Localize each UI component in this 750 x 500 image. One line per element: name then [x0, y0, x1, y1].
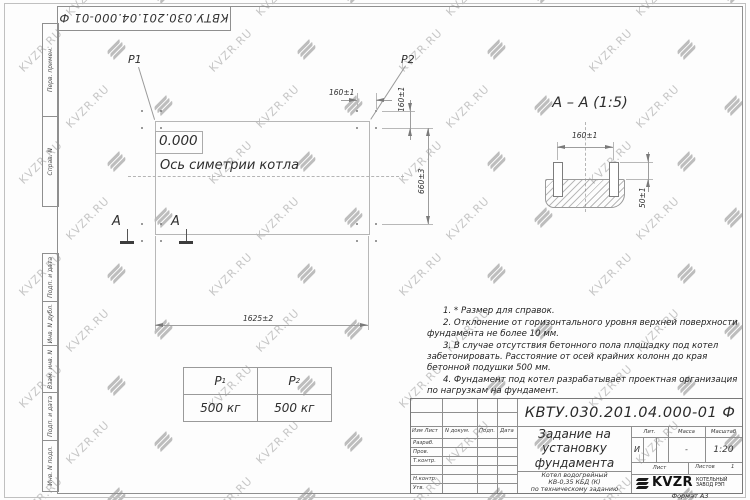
- extension-line: [357, 93, 358, 109]
- tb-col-header: Дата: [500, 428, 514, 434]
- dim-height: 660±3: [417, 169, 426, 194]
- side-label: Подп. и дата: [47, 257, 54, 298]
- doc-number: КВТУ.030.201.04.000-01 Ф: [525, 405, 736, 421]
- load-col1-header: P: [214, 374, 221, 388]
- extension-line: [155, 236, 156, 330]
- arrowhead: [426, 128, 430, 136]
- axis-label: Ось симетрии котла: [160, 158, 299, 173]
- side-label: Справ. N: [47, 148, 54, 175]
- note-item: 4. Фундамент под котел разрабатывает про…: [427, 375, 746, 397]
- extension-line: [613, 142, 614, 160]
- doc-subtitle-line: Котел водогрейный: [518, 472, 631, 479]
- scale-header: Масштаб: [705, 427, 742, 437]
- note-item: 1. * Размер для справок.: [427, 306, 746, 317]
- tb-col-header: N докум.: [445, 428, 470, 434]
- arrowhead: [646, 154, 650, 162]
- tb-line: [411, 412, 517, 413]
- company-name: KVZR: [652, 475, 693, 490]
- lit-value: И: [631, 438, 643, 461]
- anchor-bolt: [609, 162, 619, 197]
- arrowhead: [360, 323, 368, 327]
- tb-line: [656, 437, 657, 462]
- side-label: Взам. инв. N: [47, 350, 54, 389]
- side-cell: Перв. примен.: [43, 24, 58, 117]
- load-table-value: 500 кг: [184, 395, 258, 422]
- doc-title: Задание на установку фундамента: [518, 427, 631, 469]
- tb-line: [643, 437, 644, 462]
- arrowhead: [155, 323, 163, 327]
- arrowhead: [349, 98, 357, 102]
- tb-line: [442, 399, 443, 493]
- mass-value: -: [668, 438, 705, 461]
- tb-line: [411, 447, 517, 448]
- dim-bolt-spacing-x: 160±1: [329, 88, 354, 97]
- arrowhead: [408, 103, 412, 111]
- tb-col-header: Подп.: [479, 428, 495, 434]
- side-label: Перв. примен.: [47, 47, 54, 92]
- load-col2-sub: 2: [296, 376, 301, 385]
- lit-header: Лит.: [631, 427, 668, 437]
- dim-length: 1625±2: [243, 314, 273, 323]
- load-table-value: 500 кг: [258, 395, 332, 422]
- extension-line: [368, 236, 369, 330]
- load-table-header: P2: [258, 368, 332, 395]
- section-letter: А: [112, 214, 121, 229]
- dim-bolt-height: 50±1: [638, 187, 647, 208]
- tb-row-label: Пров.: [413, 449, 428, 455]
- dimension-line: [428, 128, 429, 224]
- tb-line: [411, 438, 517, 439]
- doc-subtitle-line: по техническому заданию: [518, 486, 631, 493]
- mass-header: Масса: [668, 427, 705, 437]
- arrowhead: [408, 128, 412, 136]
- anchor-bolt: [553, 162, 563, 197]
- doc-subtitle-line: КВ-0,35 КБД (К): [518, 479, 631, 486]
- side-label: Инв. N дубл.: [47, 304, 54, 343]
- tb-line: [688, 462, 689, 474]
- tb-row-label: Разраб.: [413, 440, 434, 446]
- notes: 1. * Размер для справок. 2. Отклонение о…: [427, 306, 746, 398]
- arrowhead: [557, 145, 565, 149]
- load-table: P1 P2 500 кг 500 кг: [183, 367, 332, 422]
- title-block: Изм Лист N докум. Подп. Дата Разраб. Про…: [410, 398, 743, 494]
- side-cell: Подп. и дата: [43, 254, 58, 302]
- section-title: А – А (1:5): [535, 95, 645, 111]
- side-cell: Справ. N: [43, 117, 58, 206]
- sheets-value: 1: [731, 464, 734, 470]
- extension-line: [382, 224, 433, 225]
- tb-line: [411, 426, 517, 427]
- side-cell: Инв. N подл.: [43, 441, 58, 491]
- section-cut-mark: [120, 241, 134, 244]
- symmetry-axis-line: [128, 176, 404, 177]
- side-label: Инв. N подл.: [47, 446, 54, 486]
- company-desc: КОТЕЛЬНЫЙ ЗАВОД РЭП: [696, 478, 727, 488]
- dim-section-spacing: 160±1: [572, 131, 597, 140]
- arrowhead: [605, 145, 613, 149]
- side-column-upper: Перв. примен. Справ. N: [42, 23, 59, 207]
- drawing-sheet: KVZR.RUKVZR.RUKVZR.RUKVZR.RUKVZR.RUKVZR.…: [0, 0, 750, 500]
- tb-line: [477, 399, 478, 493]
- side-label: Подп. и дата: [47, 396, 54, 437]
- note-item: 2. Отклонение от горизонтального уровня …: [427, 318, 746, 340]
- load-col2-header: P: [288, 374, 295, 388]
- tb-col-header: Изм Лист: [412, 428, 438, 434]
- arrowhead: [376, 98, 384, 102]
- dimension-line: [155, 325, 368, 326]
- top-doc-number-cell: КВТУ.030.201.04.000-01 Ф: [57, 6, 231, 31]
- tb-line: [411, 465, 517, 466]
- arrowhead: [646, 179, 650, 187]
- side-column-lower: Подп. и дата Инв. N дубл. Взам. инв. N П…: [42, 253, 59, 492]
- company-desc-line: ЗАВОД РЭП: [696, 483, 727, 488]
- side-cell: Инв. N дубл.: [43, 302, 58, 346]
- tb-line: [411, 474, 517, 475]
- load-point-1-label: P1: [128, 53, 142, 66]
- section-cut-line: [127, 229, 128, 241]
- doc-subtitle: Котел водогрейный КВ-0,35 КБД (К) по тех…: [518, 472, 631, 493]
- note-item: 3. В случае отсутствия бетонного пола пл…: [427, 341, 746, 374]
- sheet-label: Лист: [631, 463, 688, 473]
- tb-row-label: Утв.: [413, 485, 424, 491]
- kvzr-logo-icon: [637, 478, 648, 489]
- load-col1-sub: 1: [222, 376, 227, 385]
- tb-line: [497, 399, 498, 493]
- side-cell: Взам. инв. N: [43, 346, 58, 393]
- load-table-header: P1: [184, 368, 258, 395]
- scale-value: 1:20: [705, 438, 742, 461]
- tb-row-label: Н.контр.: [413, 476, 437, 482]
- doc-number-cell: КВТУ.030.201.04.000-01 Ф: [518, 399, 742, 426]
- load-point-2-label: P2: [401, 53, 415, 66]
- tb-line: [411, 456, 517, 457]
- top-doc-number: КВТУ.030.201.04.000-01 Ф: [59, 11, 229, 25]
- dim-bolt-spacing-y: 160±1: [397, 87, 406, 112]
- tb-row-label: Т.контр.: [413, 458, 436, 464]
- side-cell: Подп. и дата: [43, 393, 58, 441]
- section-cut-mark: [179, 241, 193, 244]
- arrowhead: [426, 216, 430, 224]
- sheets-label: Листов: [695, 464, 715, 470]
- level-mark: 0.000: [159, 133, 198, 149]
- section-letter: А: [171, 214, 180, 229]
- doc-title-cell: Задание на установку фундамента: [518, 426, 631, 471]
- tb-line: [411, 483, 517, 484]
- format-label: Формат А3: [648, 492, 732, 500]
- section-cut-line: [186, 229, 187, 241]
